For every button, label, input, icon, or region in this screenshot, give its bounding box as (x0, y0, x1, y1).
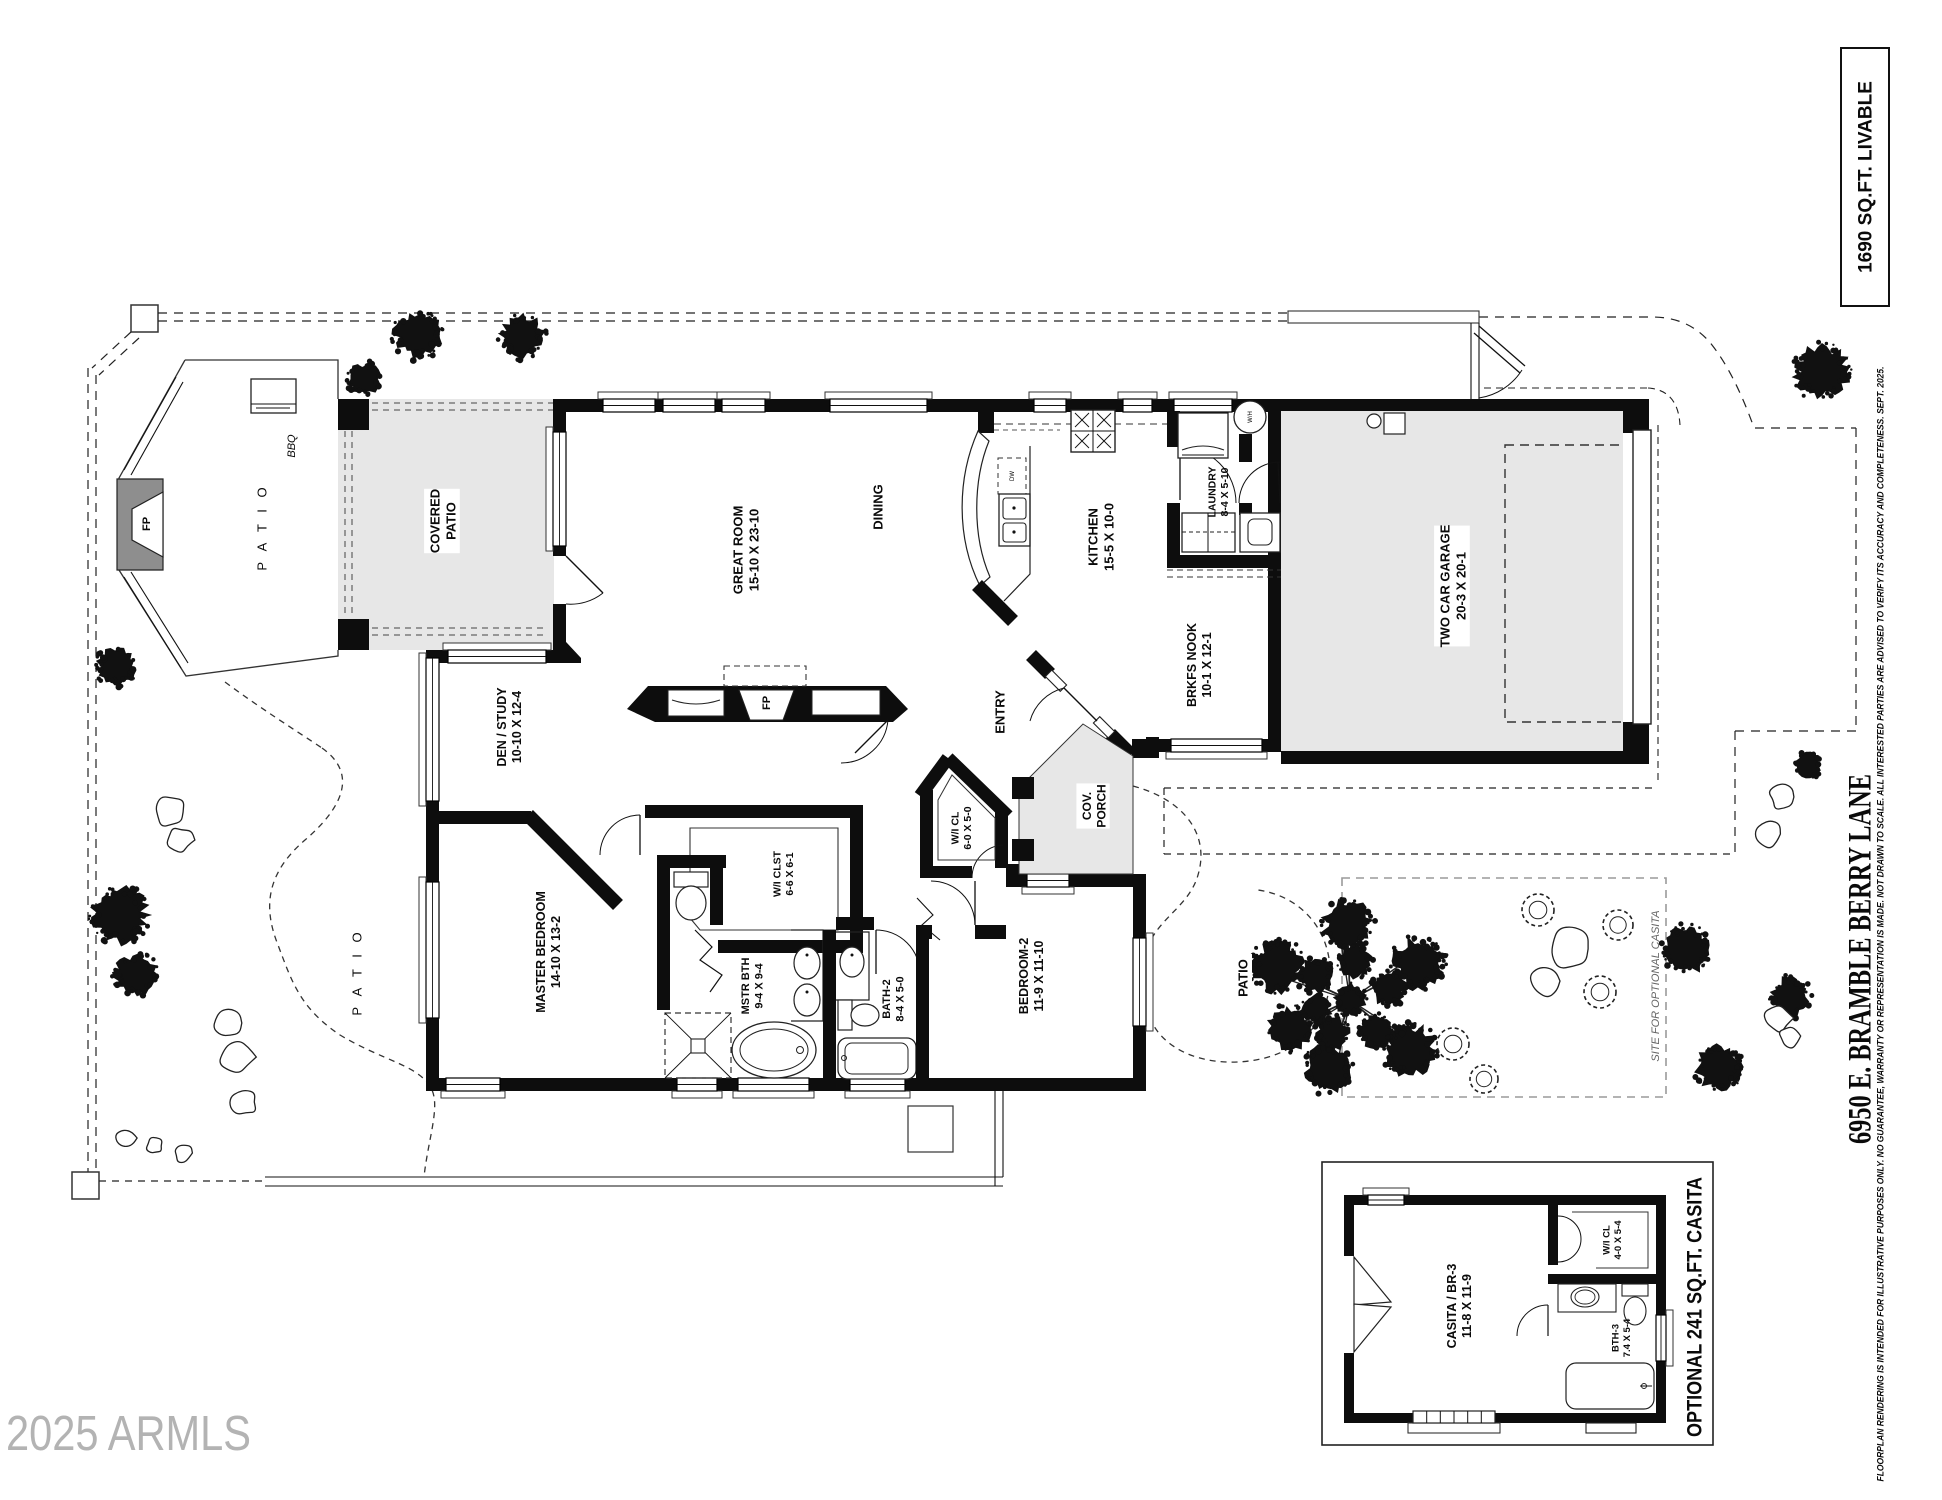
svg-text:15-10 X 23-10: 15-10 X 23-10 (747, 509, 762, 591)
svg-text:10-1 X 12-1: 10-1 X 12-1 (1200, 632, 1214, 697)
svg-text:PORCH: PORCH (1095, 784, 1109, 827)
svg-text:COVERED: COVERED (428, 489, 443, 553)
svg-text:20-3 X 20-1: 20-3 X 20-1 (1454, 552, 1469, 620)
svg-text:W/H: W/H (1248, 411, 1254, 423)
svg-text:FLOORPLAN RENDERING IS INTENDE: FLOORPLAN RENDERING IS INTENDED FOR ILLU… (1875, 367, 1886, 1482)
svg-text:6-6 X 6-1: 6-6 X 6-1 (784, 852, 796, 895)
svg-text:14-10 X 13-2: 14-10 X 13-2 (549, 916, 563, 988)
svg-text:MSTR BTH: MSTR BTH (740, 958, 752, 1015)
svg-text:FP: FP (761, 696, 773, 710)
svg-text:11-9 X 11-10: 11-9 X 11-10 (1032, 941, 1046, 1012)
svg-text:15-5 X 10-0: 15-5 X 10-0 (1102, 503, 1117, 571)
svg-text:4-0 X 5-4: 4-0 X 5-4 (1613, 1220, 1624, 1260)
svg-text:10-10 X 12-4: 10-10 X 12-4 (510, 691, 524, 763)
svg-text:COV.: COV. (1080, 792, 1094, 820)
svg-text:2025 ARMLS: 2025 ARMLS (6, 1407, 251, 1461)
svg-text:BATH-2: BATH-2 (881, 979, 893, 1019)
svg-text:DINING: DINING (871, 484, 886, 530)
svg-text:ENTRY: ENTRY (993, 690, 1008, 734)
svg-text:TWO CAR GARAGE: TWO CAR GARAGE (1438, 524, 1453, 647)
svg-text:DEN / STUDY: DEN / STUDY (495, 687, 509, 767)
svg-text:BEDROOM-2: BEDROOM-2 (1017, 938, 1031, 1014)
svg-text:FP: FP (141, 517, 153, 531)
svg-text:P A T I O: P A T I O (350, 928, 365, 1015)
svg-text:6-0 X 5-0: 6-0 X 5-0 (962, 806, 974, 849)
svg-text:GREAT ROOM: GREAT ROOM (731, 506, 746, 595)
svg-text:W/I CL: W/I CL (949, 811, 961, 844)
svg-text:DW: DW (1010, 471, 1016, 481)
svg-text:W/I CL: W/I CL (1602, 1225, 1613, 1255)
svg-text:BRKFS NOOK: BRKFS NOOK (1185, 623, 1199, 707)
svg-text:PATIO: PATIO (1236, 959, 1251, 997)
svg-text:8-4 X 5-10: 8-4 X 5-10 (1219, 467, 1231, 516)
svg-text:CASITA / BR-3: CASITA / BR-3 (1445, 1264, 1459, 1349)
svg-text:SITE FOR OPTIONAL CASITA: SITE FOR OPTIONAL CASITA (1650, 910, 1662, 1061)
svg-text:BBQ: BBQ (286, 434, 298, 458)
svg-text:PATIO: PATIO (444, 502, 459, 540)
svg-text:6950 E. BRAMBLE BERRY LANE: 6950 E. BRAMBLE BERRY LANE (1843, 774, 1879, 1144)
svg-text:1690 SQ.FT. LIVABLE: 1690 SQ.FT. LIVABLE (1856, 81, 1877, 273)
svg-text:BTH-3: BTH-3 (1611, 1324, 1622, 1352)
svg-text:OPTIONAL 241 SQ.FT. CASITA: OPTIONAL 241 SQ.FT. CASITA (1683, 1177, 1706, 1437)
svg-text:9-4 X 9-4: 9-4 X 9-4 (754, 962, 766, 1008)
svg-text:7.4 X 5-4: 7.4 X 5-4 (1622, 1318, 1633, 1357)
svg-text:KITCHEN: KITCHEN (1086, 508, 1101, 566)
svg-text:8-4 X 5-0: 8-4 X 5-0 (895, 976, 907, 1021)
svg-text:W/I CLST: W/I CLST (771, 850, 783, 897)
svg-text:P A T I O: P A T I O (255, 483, 270, 570)
svg-text:LAUNDRY: LAUNDRY (1206, 467, 1218, 518)
svg-text:11-8 X 11-9: 11-8 X 11-9 (1460, 1274, 1474, 1338)
svg-text:MASTER BEDROOM: MASTER BEDROOM (534, 891, 548, 1013)
